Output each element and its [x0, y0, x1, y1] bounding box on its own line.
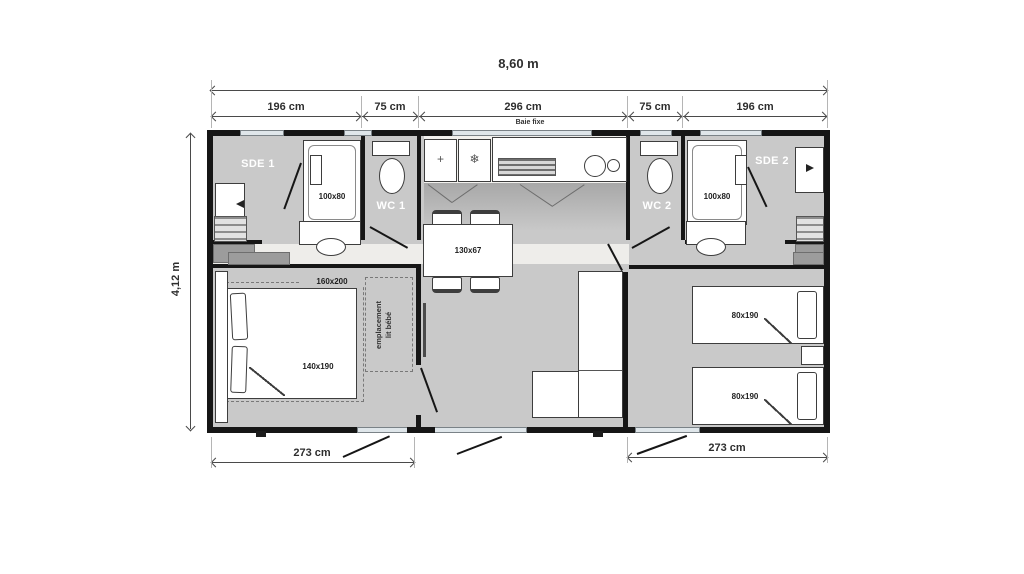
chair: [432, 277, 462, 293]
arrowhead-icon: [409, 112, 419, 122]
door-jamb: [407, 427, 435, 433]
overall-depth-label: 4,12 m: [170, 249, 182, 309]
extension-line: [361, 96, 362, 128]
door-handle: [256, 431, 266, 437]
extension-line: [682, 96, 683, 128]
blanket-fold: [764, 399, 792, 425]
wardrobe-twin: [793, 252, 824, 265]
arrowhead-icon: [684, 112, 694, 122]
segment-label-3: 296 cm: [483, 101, 563, 113]
arrowhead-icon: [186, 133, 196, 143]
shower-column-1: [310, 155, 322, 185]
arrowhead-icon: [627, 453, 637, 463]
blanket-fold: [249, 367, 285, 396]
room-label-sde1: SDE 1: [232, 158, 284, 170]
extension-line: [211, 437, 212, 468]
bed-single-1-size: 80x190: [715, 311, 775, 320]
shower-1-size: 100x80: [303, 192, 361, 201]
washbasin-1: [316, 238, 346, 256]
extension-line: [418, 96, 419, 128]
arrowhead-icon: [818, 112, 828, 122]
arrowhead-icon: [420, 112, 430, 122]
arrowhead-icon: [186, 422, 196, 432]
bed-single-2-size: 80x190: [715, 392, 775, 401]
bottom-left-width-label: 273 cm: [272, 447, 352, 459]
extension-line: [627, 437, 628, 463]
faucet-icon: [806, 164, 814, 172]
bottom-right-dim-line: [627, 457, 827, 458]
kitchen-sink: [584, 155, 606, 177]
tv-unit: [423, 303, 426, 357]
sofa-seam: [579, 370, 622, 371]
floorplan-canvas: 8,60 m 196 cm 75 cm 296 cm 75 cm 196 cm …: [0, 0, 1024, 574]
wardrobe-master: [228, 252, 290, 265]
wall-sde1-wc1: [361, 136, 365, 240]
extension-line: [211, 80, 212, 128]
plus-icon: +: [424, 152, 457, 166]
bottom-left-dim-line: [211, 462, 414, 463]
window-sde2: [700, 130, 762, 136]
wall-bedroom1-right-b: [416, 415, 421, 427]
entry-sliding-door: [357, 427, 527, 433]
sofa-seat: [532, 371, 579, 418]
window-bedroom2: [635, 427, 700, 433]
overall-depth-dim-line: [190, 134, 191, 429]
washbasin-2: [696, 238, 726, 256]
arrowhead-icon: [673, 112, 683, 122]
bottom-right-width-label: 273 cm: [687, 442, 767, 454]
room-label-wc1: WC 1: [364, 200, 418, 212]
bed-zone-size: 160x200: [300, 277, 364, 286]
arrowhead-icon: [629, 112, 639, 122]
bay-window: [452, 130, 592, 136]
wall-wc1-kitchen: [417, 136, 421, 240]
toilet-2-tank: [640, 141, 678, 156]
overall-width-dim-line: [211, 90, 827, 91]
bed-master-size: 140x190: [288, 362, 348, 371]
wall-wc2-sde2: [681, 136, 685, 240]
segment-label-5: 196 cm: [715, 101, 795, 113]
window-sde1: [240, 130, 284, 136]
pillow: [797, 372, 817, 420]
toilet-2-bowl: [647, 158, 673, 194]
shelving-1: [214, 216, 247, 242]
toilet-1-tank: [372, 141, 410, 156]
pillow: [797, 291, 817, 339]
wall-bedroom2-top: [629, 265, 824, 269]
arrowhead-icon: [352, 112, 362, 122]
arrowhead-icon: [211, 112, 221, 122]
door-handle: [593, 431, 603, 437]
wall-bedroom2-left: [623, 272, 628, 427]
toilet-1-bowl: [379, 158, 405, 194]
extension-line: [414, 437, 415, 468]
room-label-sde2: SDE 2: [746, 155, 798, 167]
pillow: [230, 293, 248, 341]
baby-bed-label: emplacement lit bébé: [374, 275, 404, 375]
wall-bedroom1-right-a: [416, 268, 421, 365]
chair: [470, 277, 500, 293]
shower-2-size: 100x80: [687, 192, 747, 201]
overall-width-label: 8,60 m: [207, 56, 830, 71]
extension-line: [827, 80, 828, 128]
extension-line: [827, 437, 828, 463]
kitchen-sink-small: [607, 159, 620, 172]
faucet-icon: [236, 200, 244, 208]
pillow: [230, 346, 248, 394]
sofa-column: [578, 271, 623, 418]
blanket-fold: [764, 318, 792, 344]
bay-window-label: Baie fixe: [470, 119, 590, 126]
arrowhead-icon: [211, 458, 221, 468]
hob: [498, 158, 556, 176]
segment-dim-line: [211, 116, 827, 117]
door-leaf-entry-2: [457, 436, 503, 455]
shelving-2: [796, 216, 824, 242]
arrowhead-icon: [618, 112, 628, 122]
arrowhead-icon: [363, 112, 373, 122]
segment-label-1: 196 cm: [246, 101, 326, 113]
extension-line: [627, 96, 628, 128]
room-label-wc2: WC 2: [630, 200, 684, 212]
window-wc1: [344, 130, 372, 136]
nightstand: [801, 346, 824, 365]
window-wc2: [640, 130, 672, 136]
door-leaf-entry-3: [637, 435, 687, 455]
snowflake-icon: ❄: [458, 152, 491, 166]
table-size: 130x67: [438, 246, 498, 255]
